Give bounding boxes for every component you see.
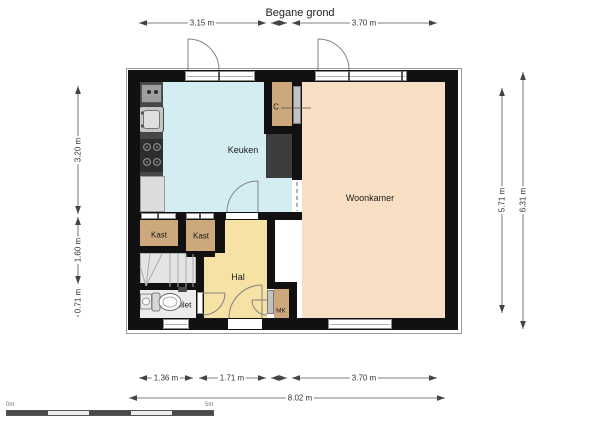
window-mullion [348, 71, 350, 81]
wall-closet1-bottom [140, 246, 178, 253]
dim-right-inner: 5.71 m [498, 186, 507, 214]
window-living-bottom [328, 319, 392, 329]
label-hall: Hal [231, 272, 245, 282]
scale-bar-segment [7, 411, 48, 415]
window-door-kitchen-top [185, 71, 255, 81]
scale-bar-start-label: 0m [6, 402, 14, 408]
wall-hall-living [267, 220, 275, 282]
wall-between-closets [178, 212, 186, 253]
dim-left-1: 3.20 m [74, 136, 83, 164]
label-living: Woonkamer [346, 193, 394, 203]
dim-bottom-2: 1.71 m [218, 374, 246, 383]
dim-bottom-3: 3.70 m [350, 374, 378, 383]
stove-icon [140, 139, 163, 172]
kitchen-sink-basin [143, 110, 160, 129]
label-closet-1: Kast [151, 231, 167, 240]
wall-mk-right [289, 282, 297, 318]
dim-bottom-total: 8.02 m [286, 394, 314, 403]
kitchen-appliance-icon [141, 84, 162, 103]
dim-top-1: 3.15 m [188, 19, 216, 28]
door-meter-closet [267, 290, 274, 314]
passage-kitchen-living [292, 180, 302, 212]
label-kitchen: Keuken [228, 145, 259, 155]
window-mullion [401, 71, 403, 81]
dim-top-2: 3.70 m [350, 19, 378, 28]
label-closet-2: Kast [193, 232, 209, 241]
door-arc-kitchen-top [188, 39, 219, 70]
door-mullion [199, 213, 201, 219]
label-meter-closet: MK [276, 308, 286, 315]
window-door-living-top [315, 71, 407, 81]
window-toilet [163, 319, 189, 329]
wall-left [128, 70, 140, 330]
wall-closet-c-left [264, 82, 272, 126]
floorplan-page: Begane grond [0, 0, 600, 424]
scale-bar-segment [131, 411, 172, 415]
door-toilet [197, 292, 203, 314]
scale-bar-segment [89, 411, 130, 415]
door-arc-living-top [318, 39, 349, 70]
door-front [228, 319, 262, 329]
wall-closet2-right [215, 212, 225, 253]
dim-left-2: 1.60 m [74, 236, 83, 264]
door-closet-c [293, 86, 301, 124]
door-mullion [157, 213, 159, 219]
dim-right-outer: 6.31 m [519, 186, 528, 214]
wall-top [128, 70, 458, 82]
wall-right [445, 70, 458, 330]
scale-bar-segment [172, 411, 213, 415]
wall-toilet-top [140, 283, 204, 290]
window-mullion [218, 71, 220, 81]
door-opening-kitchen-hall [226, 213, 258, 219]
kitchen-dark-block [266, 134, 292, 178]
scale-bar [6, 410, 214, 416]
label-closet-c: C [273, 103, 279, 112]
kitchen-counter-light [140, 176, 165, 212]
scale-bar-end-label: 5m [205, 402, 213, 408]
wall-closet-c-bottom [264, 126, 292, 134]
page-title: Begane grond [265, 7, 334, 19]
dim-bottom-1: 1.36 m [152, 374, 180, 383]
scale-bar-segment [48, 411, 89, 415]
label-toilet: Toilet [173, 301, 192, 310]
dim-left-3: 0.71 m [74, 287, 83, 315]
